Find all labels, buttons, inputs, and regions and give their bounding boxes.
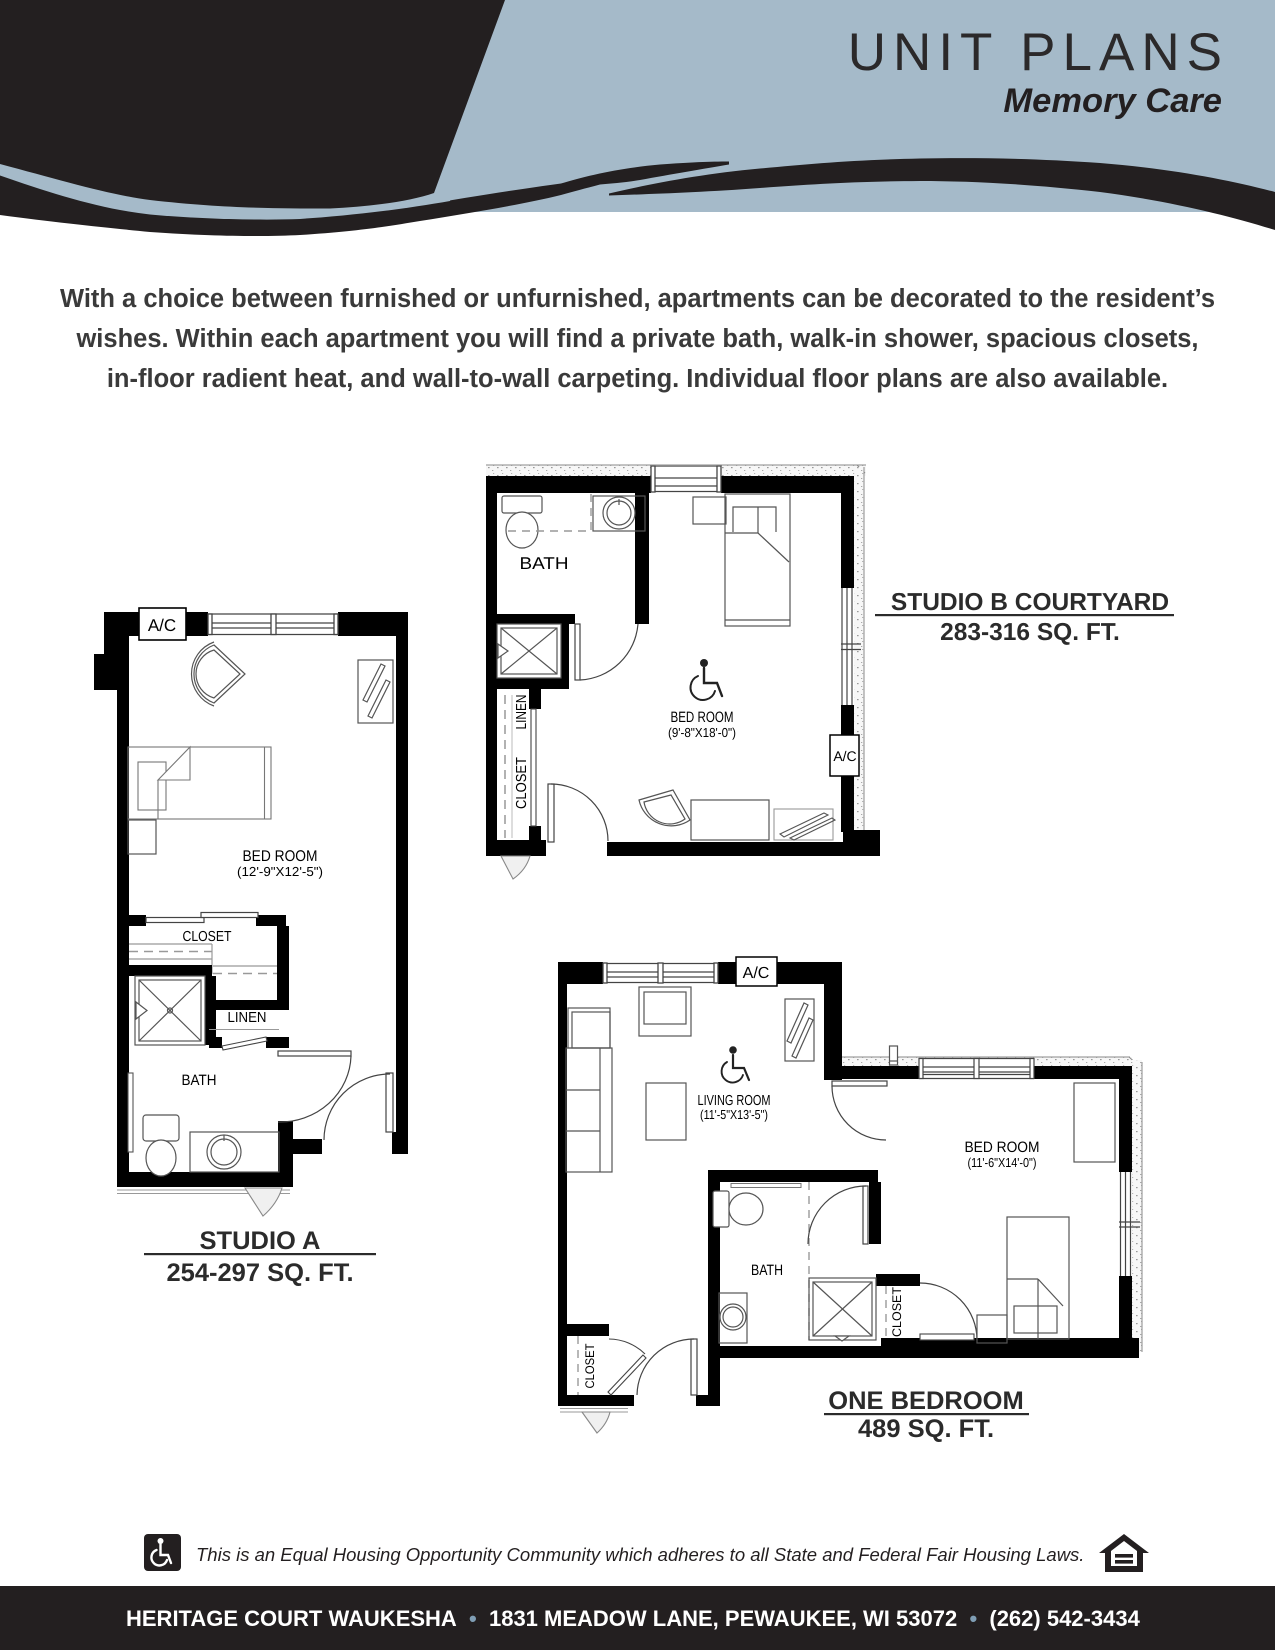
svg-text:CLOSET: CLOSET: [183, 929, 232, 945]
svg-text:CLOSET: CLOSET: [514, 757, 530, 809]
svg-text:BATH: BATH: [520, 554, 569, 573]
svg-text:BED ROOM: BED ROOM: [671, 709, 734, 726]
svg-text:LINEN: LINEN: [514, 695, 530, 730]
svg-text:BATH: BATH: [751, 1262, 783, 1279]
svg-text:STUDIO B COURTYARD: STUDIO B COURTYARD: [891, 589, 1169, 616]
svg-text:ONE BEDROOM: ONE BEDROOM: [828, 1387, 1024, 1415]
svg-text:(11'-6"X14'-0"): (11'-6"X14'-0"): [968, 1155, 1037, 1170]
svg-text:A/C: A/C: [833, 748, 856, 764]
svg-text:(11'-5"X13'-5"): (11'-5"X13'-5"): [700, 1107, 768, 1122]
svg-text:LINEN: LINEN: [228, 1010, 267, 1026]
svg-text:(9'-8"X18'-0"): (9'-8"X18'-0"): [668, 725, 736, 740]
svg-text:283-316 SQ. FT.: 283-316 SQ. FT.: [940, 619, 1120, 646]
svg-text:BATH: BATH: [182, 1072, 217, 1089]
svg-text:STUDIO A: STUDIO A: [200, 1227, 321, 1255]
svg-text:A/C: A/C: [148, 616, 176, 635]
svg-text:(12'-9"X12'-5"): (12'-9"X12'-5"): [237, 864, 323, 879]
svg-text:BED ROOM: BED ROOM: [965, 1139, 1040, 1156]
svg-text:CLOSET: CLOSET: [583, 1343, 597, 1388]
svg-text:CLOSET: CLOSET: [890, 1287, 904, 1337]
svg-text:A/C: A/C: [743, 965, 770, 982]
svg-text:489 SQ. FT.: 489 SQ. FT.: [858, 1415, 994, 1443]
svg-text:254-297 SQ. FT.: 254-297 SQ. FT.: [166, 1259, 353, 1287]
svg-text:BED ROOM: BED ROOM: [243, 848, 318, 865]
